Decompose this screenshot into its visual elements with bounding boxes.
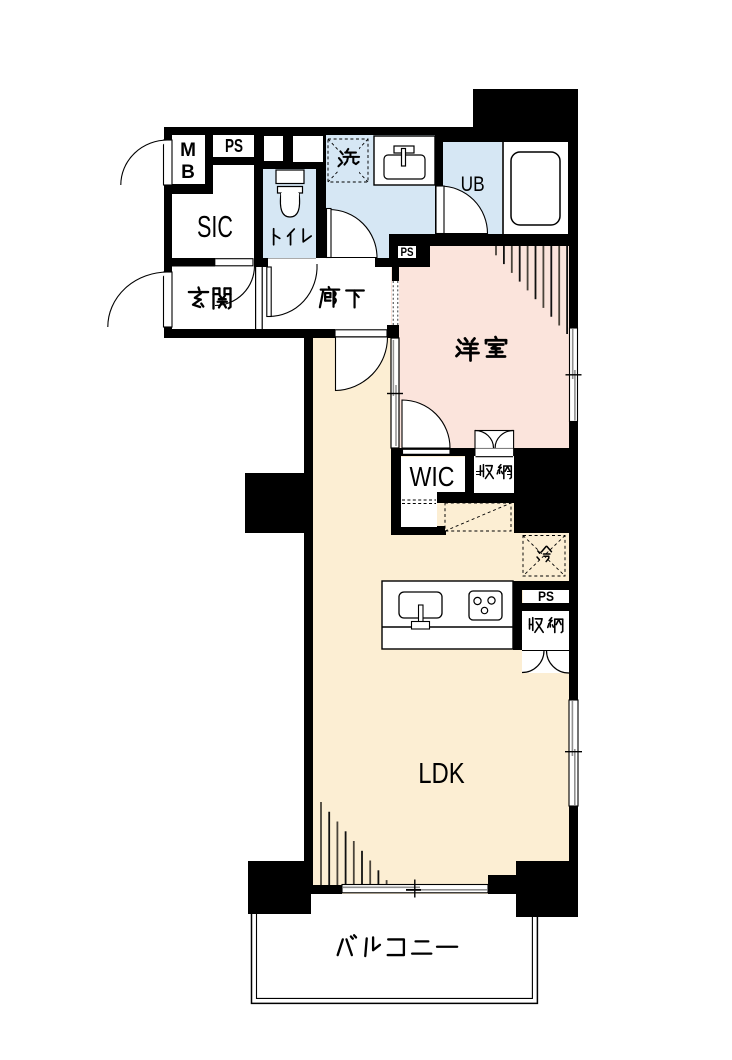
svg-text:WIC: WIC [410, 461, 455, 492]
svg-text:UB: UB [461, 173, 485, 196]
svg-text:PS: PS [225, 136, 243, 156]
svg-text:M: M [180, 140, 196, 161]
svg-text:LDK: LDK [418, 758, 465, 790]
svg-text:SIC: SIC [197, 209, 233, 244]
svg-text:PS: PS [538, 589, 554, 604]
svg-text:PS: PS [401, 247, 414, 259]
svg-text:B: B [181, 162, 195, 183]
